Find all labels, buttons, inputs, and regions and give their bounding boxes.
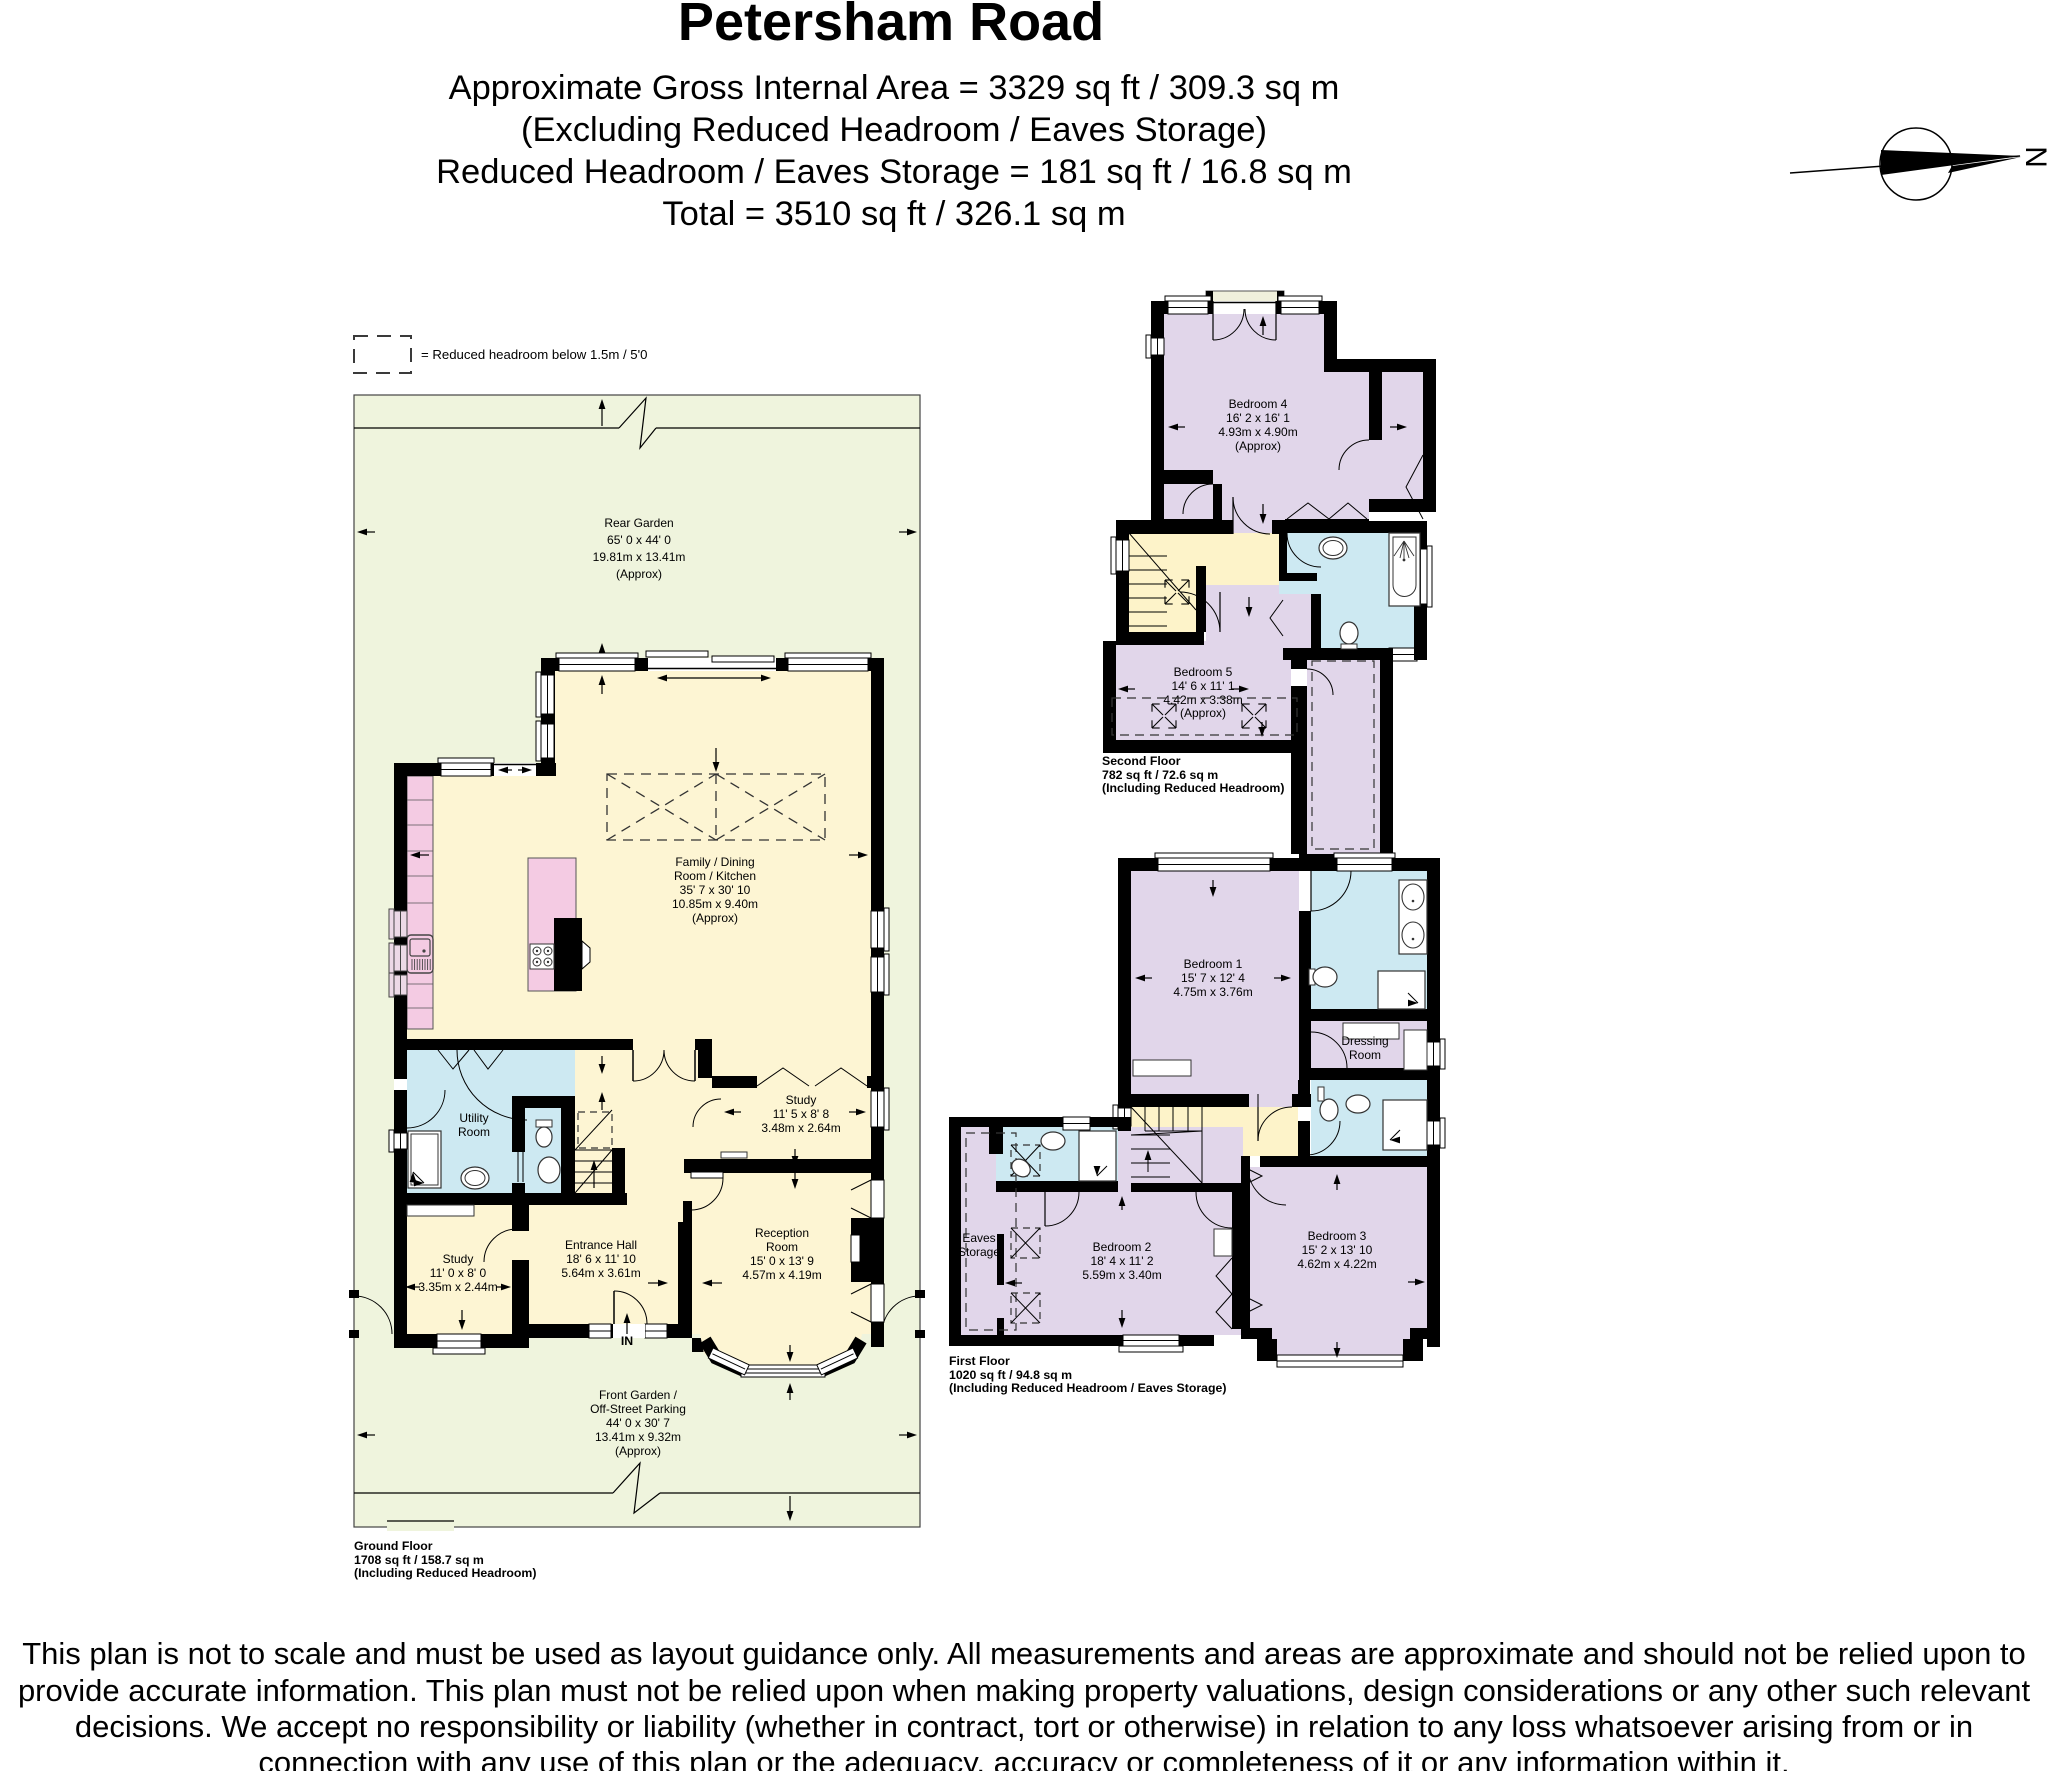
svg-text:(Approx): (Approx) xyxy=(616,567,662,581)
svg-text:Ground Floor: Ground Floor xyxy=(354,1539,433,1553)
svg-text:Family / Dining: Family / Dining xyxy=(675,855,754,869)
svg-text:19.81m x 13.41m: 19.81m x 13.41m xyxy=(593,550,686,564)
svg-text:11' 0 x 8' 0: 11' 0 x 8' 0 xyxy=(430,1266,487,1280)
svg-text:(Including Reduced Headroom): (Including Reduced Headroom) xyxy=(354,1566,536,1580)
svg-text:Room: Room xyxy=(766,1240,798,1254)
svg-text:Off-Street Parking: Off-Street Parking xyxy=(590,1402,686,1416)
svg-text:Petersham Road: Petersham Road xyxy=(678,0,1104,52)
svg-text:35' 7 x 30' 10: 35' 7 x 30' 10 xyxy=(680,883,751,897)
svg-text:(Approx): (Approx) xyxy=(615,1444,661,1458)
svg-text:18' 4 x 11' 2: 18' 4 x 11' 2 xyxy=(1090,1254,1153,1268)
svg-text:Second Floor: Second Floor xyxy=(1102,754,1181,768)
svg-text:4.57m x 4.19m: 4.57m x 4.19m xyxy=(742,1268,821,1282)
svg-text:Bedroom 1: Bedroom 1 xyxy=(1184,957,1243,971)
svg-text:3.35m x 2.44m: 3.35m x 2.44m xyxy=(418,1280,497,1294)
svg-text:4.93m x 4.90m: 4.93m x 4.90m xyxy=(1218,425,1297,439)
svg-text:14' 6 x 11' 1: 14' 6 x 11' 1 xyxy=(1171,679,1234,693)
svg-text:Reduced Headroom / Eaves Stora: Reduced Headroom / Eaves Storage = 181 s… xyxy=(436,153,1352,191)
svg-text:IN: IN xyxy=(621,1334,633,1348)
svg-text:13.41m x 9.32m: 13.41m x 9.32m xyxy=(595,1430,681,1444)
svg-text:decisions. We accept no respon: decisions. We accept no responsibility o… xyxy=(75,1709,1973,1744)
svg-text:Entrance Hall: Entrance Hall xyxy=(565,1238,637,1252)
svg-text:4.62m x 4.22m: 4.62m x 4.22m xyxy=(1297,1257,1376,1271)
svg-text:782 sq ft / 72.6 sq m: 782 sq ft / 72.6 sq m xyxy=(1102,768,1218,782)
svg-text:Dressing: Dressing xyxy=(1341,1034,1388,1048)
svg-text:Bedroom 2: Bedroom 2 xyxy=(1093,1240,1152,1254)
svg-text:(Approx): (Approx) xyxy=(692,911,738,925)
svg-text:10.85m x 9.40m: 10.85m x 9.40m xyxy=(672,897,758,911)
svg-text:16' 2 x 16' 1: 16' 2 x 16' 1 xyxy=(1226,411,1290,425)
svg-text:4.75m x 3.76m: 4.75m x 3.76m xyxy=(1173,985,1252,999)
svg-text:1708 sq ft / 158.7 sq m: 1708 sq ft / 158.7 sq m xyxy=(354,1553,484,1567)
svg-text:Total = 3510 sq ft / 326.1 sq: Total = 3510 sq ft / 326.1 sq m xyxy=(662,195,1125,233)
svg-text:Room: Room xyxy=(1349,1048,1381,1062)
svg-text:Study: Study xyxy=(443,1252,474,1266)
svg-text:3.48m x 2.64m: 3.48m x 2.64m xyxy=(761,1121,840,1135)
svg-text:Bedroom 5: Bedroom 5 xyxy=(1174,665,1233,679)
svg-text:Study: Study xyxy=(786,1093,817,1107)
svg-text:11' 5 x 8' 8: 11' 5 x 8' 8 xyxy=(773,1107,830,1121)
svg-text:Utility: Utility xyxy=(459,1111,488,1125)
svg-text:(Approx): (Approx) xyxy=(1180,706,1226,720)
svg-text:This plan is not to scale and: This plan is not to scale and must be us… xyxy=(22,1636,2026,1671)
svg-text:(Including Reduced Headroom /: (Including Reduced Headroom / Eaves Stor… xyxy=(949,1381,1226,1395)
svg-text:connection with any use of thi: connection with any use of this plan or … xyxy=(258,1745,1789,1771)
svg-text:Approximate Gross Internal Are: Approximate Gross Internal Area = 3329 s… xyxy=(449,69,1340,107)
svg-text:Reception: Reception xyxy=(755,1226,809,1240)
svg-text:65' 0 x 44' 0: 65' 0 x 44' 0 xyxy=(607,533,671,547)
svg-text:(Approx): (Approx) xyxy=(1235,439,1281,453)
svg-text:1020 sq ft / 94.8 sq m: 1020 sq ft / 94.8 sq m xyxy=(949,1368,1072,1382)
svg-text:(Including Reduced Headroom): (Including Reduced Headroom) xyxy=(1102,781,1284,795)
svg-text:Storage: Storage xyxy=(958,1245,1000,1259)
svg-text:Room / Kitchen: Room / Kitchen xyxy=(674,869,756,883)
svg-text:N: N xyxy=(2019,146,2048,168)
svg-text:5.59m x 3.40m: 5.59m x 3.40m xyxy=(1082,1268,1161,1282)
svg-text:Bedroom 3: Bedroom 3 xyxy=(1308,1229,1367,1243)
svg-text:Eaves: Eaves xyxy=(962,1231,995,1245)
svg-text:Rear Garden: Rear Garden xyxy=(604,516,673,530)
svg-text:provide accurate information.: provide accurate information. This plan … xyxy=(18,1673,2031,1708)
svg-text:15' 0 x 13' 9: 15' 0 x 13' 9 xyxy=(750,1254,814,1268)
svg-text:Bedroom 4: Bedroom 4 xyxy=(1229,397,1288,411)
svg-text:Room: Room xyxy=(458,1125,490,1139)
svg-text:= Reduced headroom below 1.5m: = Reduced headroom below 1.5m / 5'0 xyxy=(421,347,647,362)
svg-text:Front Garden /: Front Garden / xyxy=(599,1388,678,1402)
svg-text:First Floor: First Floor xyxy=(949,1354,1010,1368)
svg-text:18' 6 x 11' 10: 18' 6 x 11' 10 xyxy=(566,1252,636,1266)
svg-text:44' 0 x 30' 7: 44' 0 x 30' 7 xyxy=(606,1416,670,1430)
svg-text:(Excluding Reduced Headroom /: (Excluding Reduced Headroom / Eaves Stor… xyxy=(521,111,1267,149)
svg-text:15' 2 x 13' 10: 15' 2 x 13' 10 xyxy=(1302,1243,1373,1257)
svg-text:5.64m x 3.61m: 5.64m x 3.61m xyxy=(561,1266,640,1280)
svg-text:15' 7 x 12' 4: 15' 7 x 12' 4 xyxy=(1181,971,1245,985)
